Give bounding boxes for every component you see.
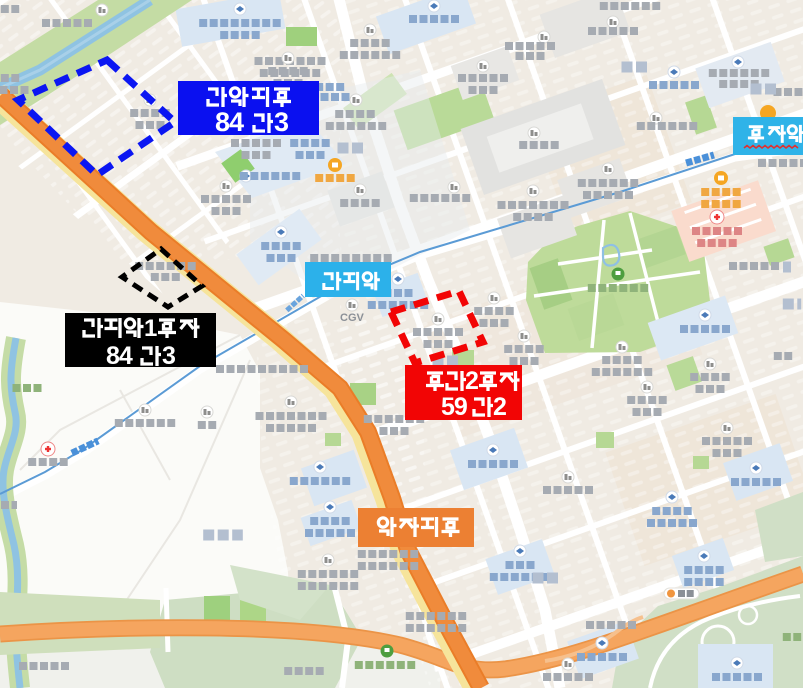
svg-text:3: 3 (162, 342, 176, 370)
svg-text:2: 2 (493, 393, 507, 421)
svg-text:2: 2 (465, 367, 479, 395)
svg-text:59: 59 (441, 393, 467, 421)
svg-text:84: 84 (106, 342, 133, 370)
svg-text:CGV: CGV (340, 312, 365, 324)
svg-text:1: 1 (144, 315, 157, 342)
svg-text:84: 84 (215, 107, 244, 137)
svg-text:3: 3 (274, 107, 289, 137)
